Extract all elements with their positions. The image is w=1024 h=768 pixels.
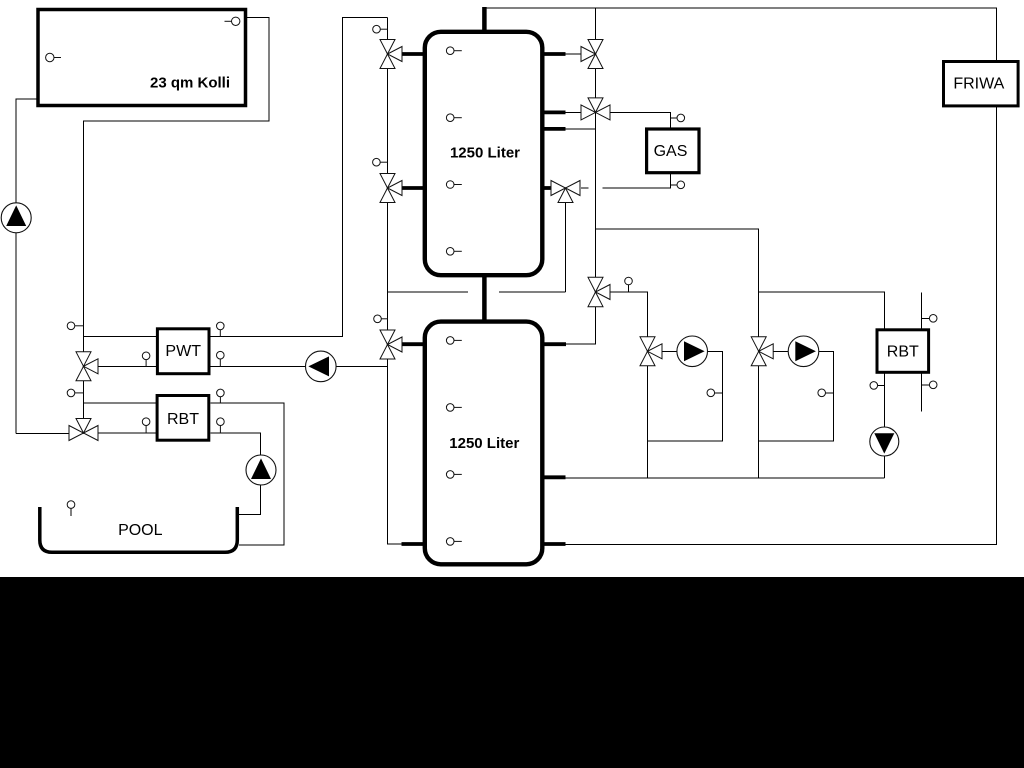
svg-text:1250 Liter: 1250 Liter	[449, 435, 519, 452]
svg-text:FRIWA: FRIWA	[953, 76, 1004, 93]
svg-text:PWT: PWT	[165, 343, 201, 360]
svg-text:POOL: POOL	[118, 522, 163, 539]
svg-text:23 qm Kolli: 23 qm Kolli	[150, 75, 230, 92]
svg-text:1250 Liter: 1250 Liter	[450, 145, 520, 162]
svg-text:RBT: RBT	[887, 344, 919, 361]
svg-text:GAS: GAS	[654, 143, 688, 160]
svg-text:RBT: RBT	[167, 411, 199, 428]
